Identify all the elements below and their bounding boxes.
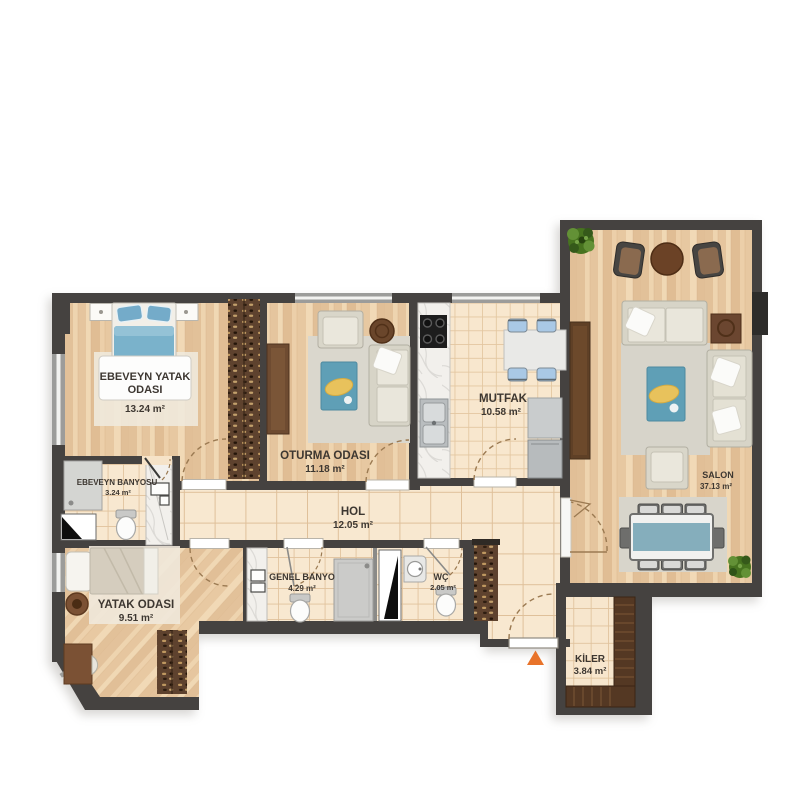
svg-text:EBEVEYN BANYOSU: EBEVEYN BANYOSU <box>77 478 158 487</box>
svg-text:WÇ: WÇ <box>434 572 449 582</box>
svg-text:OTURMA ODASI: OTURMA ODASI <box>280 450 370 462</box>
svg-text:9.51 m²: 9.51 m² <box>119 613 154 624</box>
svg-text:SALON: SALON <box>702 470 734 480</box>
svg-text:13.24 m²: 13.24 m² <box>125 404 166 415</box>
svg-text:37.13 m²: 37.13 m² <box>700 482 732 491</box>
svg-text:EBEVEYN YATAK: EBEVEYN YATAK <box>100 371 191 383</box>
svg-text:3.84 m²: 3.84 m² <box>574 666 607 677</box>
svg-text:ODASI: ODASI <box>128 384 163 396</box>
svg-text:10.58 m²: 10.58 m² <box>481 407 522 418</box>
svg-text:HOL: HOL <box>341 506 365 518</box>
svg-text:YATAK ODASI: YATAK ODASI <box>98 599 174 611</box>
svg-text:3.24 m²: 3.24 m² <box>105 488 131 497</box>
svg-text:2.05 m²: 2.05 m² <box>430 583 456 592</box>
svg-text:KİLER: KİLER <box>575 652 606 665</box>
svg-text:11.18 m²: 11.18 m² <box>305 464 345 475</box>
svg-text:GENEL BANYO: GENEL BANYO <box>269 572 335 582</box>
svg-text:MUTFAK: MUTFAK <box>479 393 528 405</box>
svg-text:12.05 m²: 12.05 m² <box>333 520 374 531</box>
svg-text:4.29 m²: 4.29 m² <box>288 584 316 593</box>
